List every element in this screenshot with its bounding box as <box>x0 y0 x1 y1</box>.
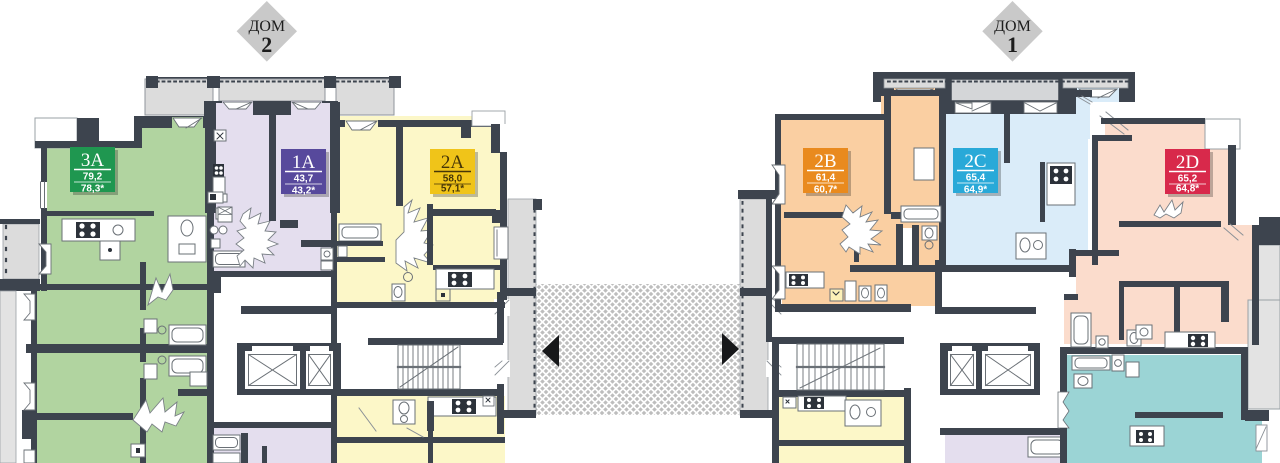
svg-text:60,7*: 60,7* <box>814 185 837 196</box>
svg-text:2: 2 <box>261 32 272 57</box>
svg-text:3А: 3А <box>81 150 105 171</box>
svg-text:2В: 2В <box>814 151 836 172</box>
svg-text:64,9*: 64,9* <box>964 185 987 196</box>
svg-text:64,8*: 64,8* <box>1176 184 1199 195</box>
svg-text:61,4: 61,4 <box>816 173 836 184</box>
svg-text:43,7: 43,7 <box>294 174 314 185</box>
svg-text:79,2: 79,2 <box>83 172 103 183</box>
svg-text:1: 1 <box>1007 32 1018 57</box>
svg-text:2А: 2А <box>441 152 465 173</box>
svg-text:2D: 2D <box>1176 152 1199 173</box>
svg-text:2С: 2С <box>964 151 986 172</box>
svg-text:78,3*: 78,3* <box>81 184 104 195</box>
svg-text:65,4: 65,4 <box>966 173 986 184</box>
svg-text:43,2*: 43,2* <box>292 186 315 197</box>
svg-text:1А: 1А <box>292 152 316 173</box>
svg-text:57,1*: 57,1* <box>441 184 464 195</box>
